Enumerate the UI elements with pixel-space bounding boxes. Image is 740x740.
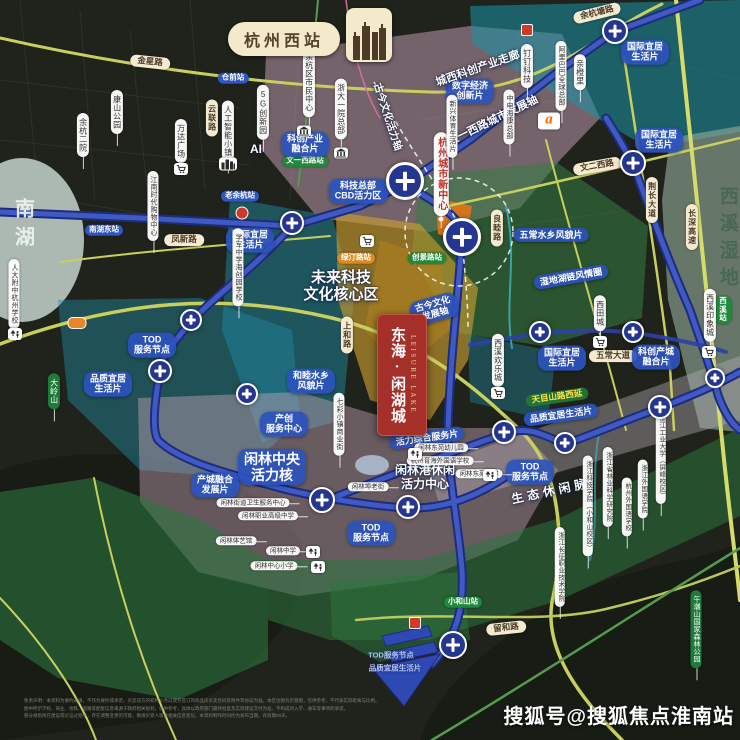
lake-label-nanhu: 南湖 xyxy=(11,198,34,254)
road-label-liuhelu: 留和路 xyxy=(486,620,527,636)
road-label-liangmulu: 良睦路 xyxy=(491,210,503,247)
mall-cart-icon-xitiancheng xyxy=(593,336,607,348)
hangzhou-west-station: 杭州西站 xyxy=(228,8,392,62)
school-icon-xianlin-primary xyxy=(311,561,325,573)
metro-station-icon-6 xyxy=(180,309,202,331)
poi-pill-zisu: 浙江外国语学院 xyxy=(638,460,648,519)
metro-station-icon-16 xyxy=(439,631,467,659)
project-banner: 东海·闲湖城 LEISURE LAKE xyxy=(377,314,427,436)
poi-pill-xitiancheng: 西田城 xyxy=(594,295,606,331)
promo-map: 金星路余杭塘路文二西路凤新路五常大道留和路良睦路荆长大道长深高速上和路云联路文一… xyxy=(0,0,740,740)
poi-red-dot-icon xyxy=(236,207,249,220)
poi-pill-alibaba-hq: 阿里巴巴全球总部 xyxy=(555,41,566,111)
zone-label-chanchuang-center: 产创 服务中心 xyxy=(260,412,308,437)
zone-label-quality-livable-1: 品质宜居 生活片 xyxy=(84,372,132,397)
zone-label-cbd-vitality: 科技总部 CBD活力区 xyxy=(329,179,388,204)
zone-label-wuchang-watertown: 五常水乡风貌片 xyxy=(513,228,588,242)
poi-pill-rendafuzhong: 人大附中杭州学校 xyxy=(8,259,19,329)
road-label-yunlianlu: 云联路 xyxy=(206,100,218,137)
zone-label-chancheng-fusion: 产城融合 发展片 xyxy=(191,473,239,498)
station-pill-xixi: 西溪站 xyxy=(715,296,732,324)
metro-station-icon-3 xyxy=(602,18,628,44)
road-label-fengxinlu: 凤新路 xyxy=(164,234,204,246)
poi-pill-hangzhou-foreign-school: 杭州外国语学校 xyxy=(622,478,632,537)
poi-pill-dongyuan-kindergarten: 闲林东苑幼儿园 xyxy=(414,443,468,452)
zone-label-hemu-watertown: 和睦水乡 风貌片 xyxy=(287,369,335,394)
poi-pill-qinchengli: 亲橙里 xyxy=(574,54,586,90)
poi-pill-zust: 浙江科技学院（小和山校区） xyxy=(583,456,593,557)
metro-station-icon-9 xyxy=(309,487,335,513)
station-pill-lvtinglu: 绿汀路站 xyxy=(337,253,375,264)
metro-station-icon-4 xyxy=(280,211,304,235)
zone-label-tod-node-2: TOD 服务节点 xyxy=(506,460,554,485)
zone-label-intl-livable-1: 国际宜居 生活片 xyxy=(621,40,669,65)
road-label-wenerxilu: 文二西路 xyxy=(572,156,621,176)
mall-cart-icon-joyland xyxy=(491,387,505,399)
poi-pill-xuejun-school: 学军中学海创园学校 xyxy=(232,228,243,306)
poi-pill-xianlin-primary: 闲林中心小学 xyxy=(251,561,298,570)
mall-cart-icon-cbd xyxy=(360,235,374,247)
metro-station-icon-17 xyxy=(705,368,725,388)
poi-pill-xianlin-health-center: 闲林街道卫生服务中心 xyxy=(217,498,290,507)
road-label-jingchangdadao: 荆长大道 xyxy=(646,177,658,223)
poi-pill-kangshan-park: 康山公园 xyxy=(111,90,123,134)
poi-pill-zjut: 浙江工业大学（屏峰校区） xyxy=(656,410,666,504)
zone-label-intl-livable-2: 国际宜居 生活片 xyxy=(635,128,683,153)
poi-pill-xianlin-gym: 闲林体艺馆 xyxy=(216,536,257,545)
wetland-label-xixi: 西溪湿地 xyxy=(716,186,738,294)
school-icon-rendafuzhong xyxy=(8,328,22,340)
station-pill-chuangjinglu: 创景路站 xyxy=(408,253,446,264)
road-label-shanghelu: 上和路 xyxy=(341,317,353,354)
hangzhou-west-station-label: 杭州西站 xyxy=(228,22,340,56)
poi-pill-xianlin-vocational: 闲林职业高级中学 xyxy=(238,511,298,520)
axis-label-gujin-vitality: 古今文化活力轴 xyxy=(371,82,404,152)
poi-pill-xianlin-middle-school: 闲林中学 xyxy=(266,546,300,555)
highway-badge-icon xyxy=(68,317,87,329)
poi-pill-cethik: 中电海康总部 xyxy=(503,90,514,145)
city-buildings-icon xyxy=(219,158,237,171)
metro-station-icon-14 xyxy=(492,420,516,444)
zone-label-tod-node-1: TOD 服务节点 xyxy=(128,333,176,358)
poi-pill-yuhang-hospital: 余杭二院 xyxy=(77,113,89,157)
poi-pill-sports-life: 新兴体育生活片 xyxy=(446,95,457,158)
watermark: 搜狐号@搜狐焦点淮南站 xyxy=(503,700,734,729)
zone-label-quality-livable-3: 品质宜居生活片 xyxy=(369,665,422,674)
project-name-cn: 东海·闲湖城 xyxy=(387,327,408,424)
station-pill-wenyixilu: 文一西路站 xyxy=(282,156,328,167)
metro-station-icon-7 xyxy=(148,359,172,383)
mall-cart-icon-wanda xyxy=(174,163,188,175)
school-icon-yuhai xyxy=(408,448,422,460)
zone-label-xianlin-core: 闲林中央 活力核 xyxy=(238,449,306,485)
metro-station-icon-15 xyxy=(554,432,576,454)
station-pill-nanhudong: 南湖东站 xyxy=(85,225,123,236)
poi-pill-ai-town: 人工智能小镇 xyxy=(222,101,234,162)
poi-red-icon-2 xyxy=(409,617,421,629)
poi-red-icon-1 xyxy=(521,24,533,36)
station-pill-xiaoheshan: 小和山站 xyxy=(444,597,482,608)
poi-pill-xixi-joyland: 西溪欢乐城 xyxy=(492,334,504,387)
station-pill-laoyuhang: 老余杭站 xyxy=(221,191,259,202)
zone-label-wetland-ring: 湿地湖链风情圈 xyxy=(533,263,609,290)
school-icon-xianlin-middle xyxy=(306,546,320,558)
metro-station-icon-10 xyxy=(396,495,420,519)
station-building-icon xyxy=(346,8,392,62)
metro-station-icon-5 xyxy=(620,150,646,176)
poi-pill-xianlinbu-old-street: 闲林埠老街 xyxy=(348,482,389,491)
metro-station-icon-12 xyxy=(622,321,644,343)
poi-pill-forestry-academy: 浙江省林业科学研究院 xyxy=(603,447,613,527)
poi-pill-qicai-street: 七彩小镇商业街 xyxy=(333,393,344,456)
alibaba-logo-icon: a xyxy=(538,113,560,130)
metro-station-icon-2 xyxy=(443,218,481,256)
zone-label-xianlingang-center: 闲林港休闲 活力中心 xyxy=(395,464,455,492)
bank-building-icon-1 xyxy=(297,126,311,137)
metro-station-icon-8 xyxy=(236,383,258,405)
poi-pill-5g-park: 5G创新园 xyxy=(257,85,269,140)
poi-pill-zheda-hospital: 浙大一院总部 xyxy=(335,79,347,140)
poi-pill-xixi-intime: 西溪印象城 xyxy=(704,289,716,342)
station-pill-cangqian: 仓前站 xyxy=(218,73,249,84)
zone-label-tod-node-4: TOD服务节点 xyxy=(368,652,414,661)
metro-station-icon-13 xyxy=(648,395,672,419)
poi-pill-wuchaoshan-park: 午潮山国家森林公园 xyxy=(690,590,701,668)
poi-pill-changzheng-college: 浙江长征职业技术学院 xyxy=(555,527,565,607)
metro-station-icon-11 xyxy=(529,321,551,343)
road-label-jinxinglu: 金星路 xyxy=(130,54,171,70)
zone-label-future-tech-core: 未来科技 文化核心区 xyxy=(303,269,378,304)
road-label-wuchangdadao: 五常大道 xyxy=(589,350,637,362)
metro-station-icon-1 xyxy=(386,162,424,200)
road-label-changshengaosu: 长深高速 xyxy=(686,204,698,250)
project-name-en: LEISURE LAKE xyxy=(409,335,417,414)
poi-pill-dingding: 钉钉科技 xyxy=(521,44,533,88)
bank-building-icon-2 xyxy=(334,148,348,159)
area-label-ai: AI xyxy=(250,143,262,157)
zone-label-tod-node-3: TOD 服务节点 xyxy=(347,521,395,546)
zone-label-quality-livable-2: 品质宜居生活片 xyxy=(523,403,599,428)
map-label-layer: 金星路余杭塘路文二西路凤新路五常大道留和路良睦路荆长大道长深高速上和路云联路文一… xyxy=(0,0,740,740)
mall-cart-icon-intime xyxy=(702,346,716,358)
poi-pill-jiangnan-mall: 江南时代购物中心 xyxy=(147,171,158,241)
school-icon-dongyuan xyxy=(483,469,497,481)
poi-pill-wanda-plaza: 万达广场 xyxy=(175,119,187,163)
poi-pill-daling-mountain: 大岭山 xyxy=(48,373,60,409)
zone-label-intl-livable-4: 国际宜居 生活片 xyxy=(538,346,586,371)
zone-label-kechuang-city: 科创产城 融合片 xyxy=(632,345,680,370)
